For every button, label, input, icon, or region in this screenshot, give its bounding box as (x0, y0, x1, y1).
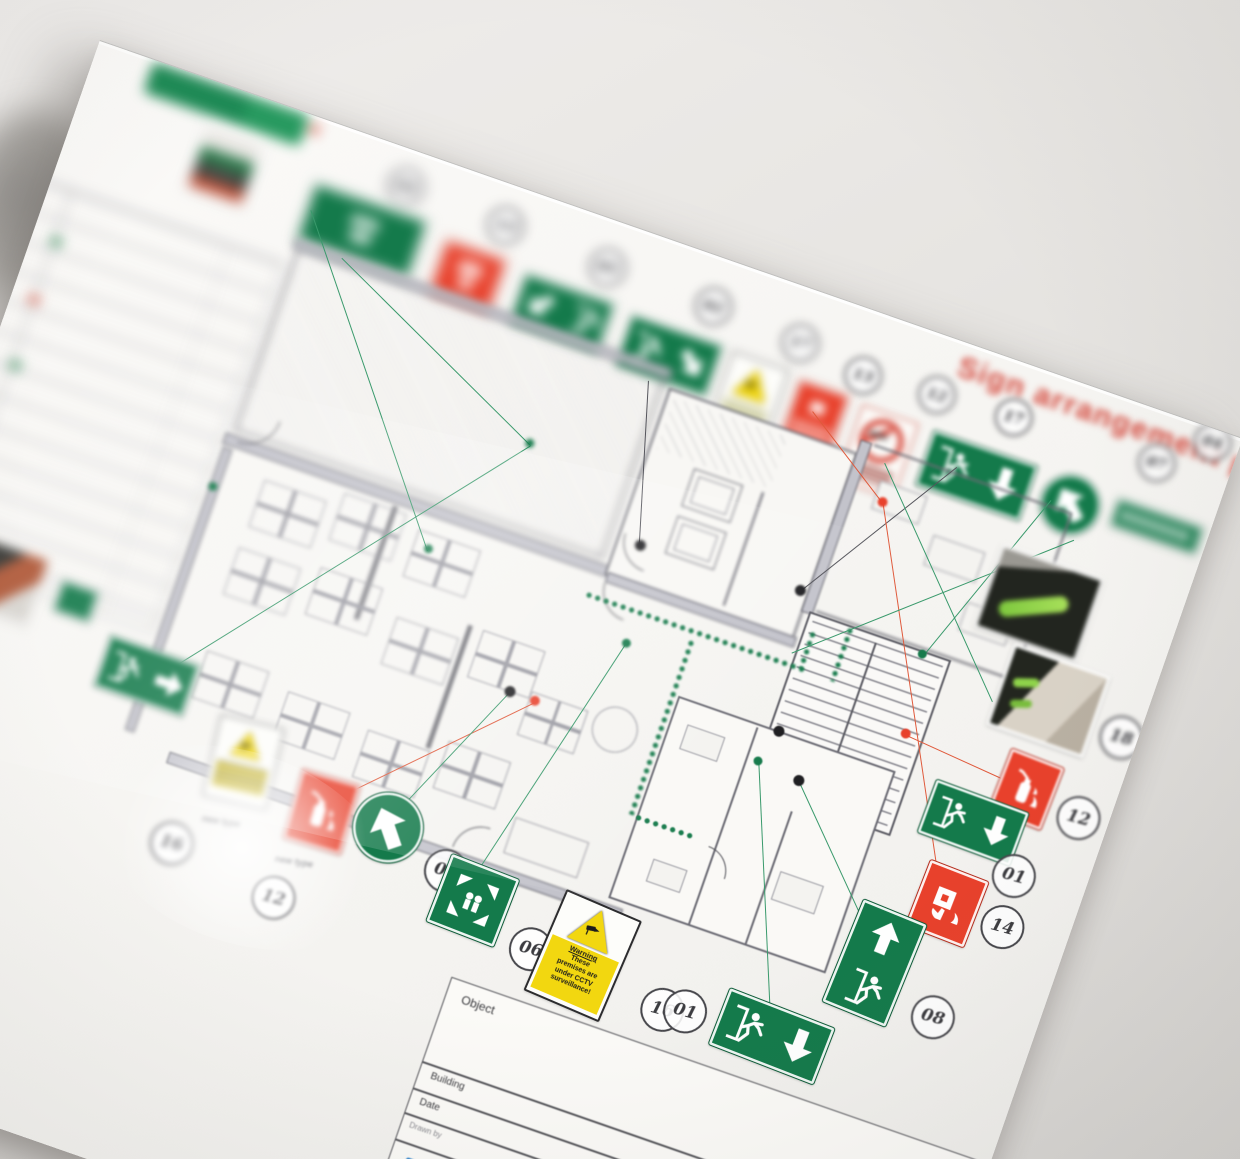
legend-number-circle: 13 (840, 352, 887, 399)
legend-number-circle: 05 (584, 244, 631, 291)
title-block-object-label: Object (459, 993, 496, 1018)
legend-number-circle: 13 (482, 202, 529, 249)
marker-circle-14: 14 (975, 900, 1029, 954)
legend-number-circle: 17 (777, 320, 824, 367)
sign-arrangement-plan-panel: Sign arrangement plan 04 13 05 02 17 13 … (0, 40, 1240, 1159)
warning-cctv-icon (732, 364, 775, 404)
cctv-warning-sign: Warning These premises are under CCTV su… (523, 889, 642, 1022)
title-block-date-label: Date (418, 1096, 442, 1113)
legend-number-circle: 02 (690, 283, 737, 330)
exit-sign-arrow-down-bottom (707, 987, 836, 1086)
marker-circle-08: 08 (906, 990, 960, 1044)
header-photo-thumbnail (184, 125, 264, 208)
green-banner-sign (1108, 497, 1205, 556)
legend-number-circle: 04 (382, 163, 429, 210)
marker-circle-12: 12 (1052, 791, 1106, 845)
marker-circle-18: 18 (1094, 711, 1148, 765)
photo-scene: Sign arrangement plan 04 13 05 02 17 13 … (0, 0, 1240, 1159)
